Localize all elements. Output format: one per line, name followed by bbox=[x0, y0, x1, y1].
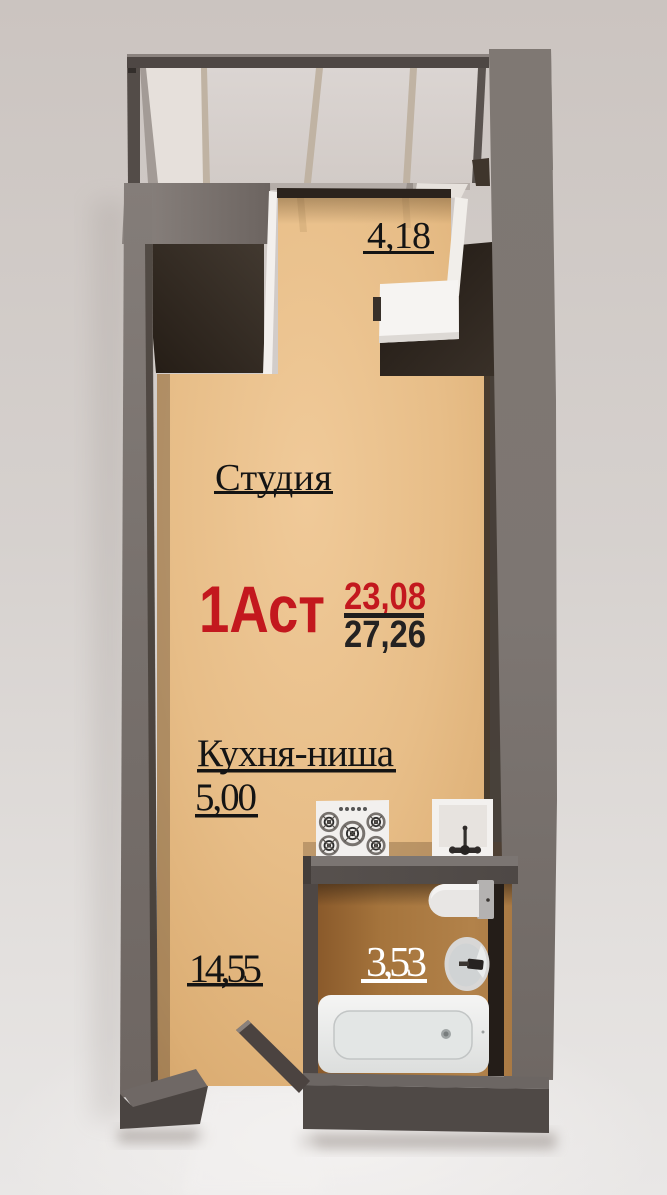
svg-text:5,00: 5,00 bbox=[195, 776, 257, 819]
svg-text:4,18: 4,18 bbox=[367, 215, 431, 257]
svg-text:1Аст: 1Аст bbox=[199, 572, 325, 646]
svg-text:23,08: 23,08 bbox=[344, 576, 426, 618]
svg-text:27,26: 27,26 bbox=[344, 614, 426, 656]
svg-text:Кухня-ниша: Кухня-ниша bbox=[197, 732, 394, 775]
